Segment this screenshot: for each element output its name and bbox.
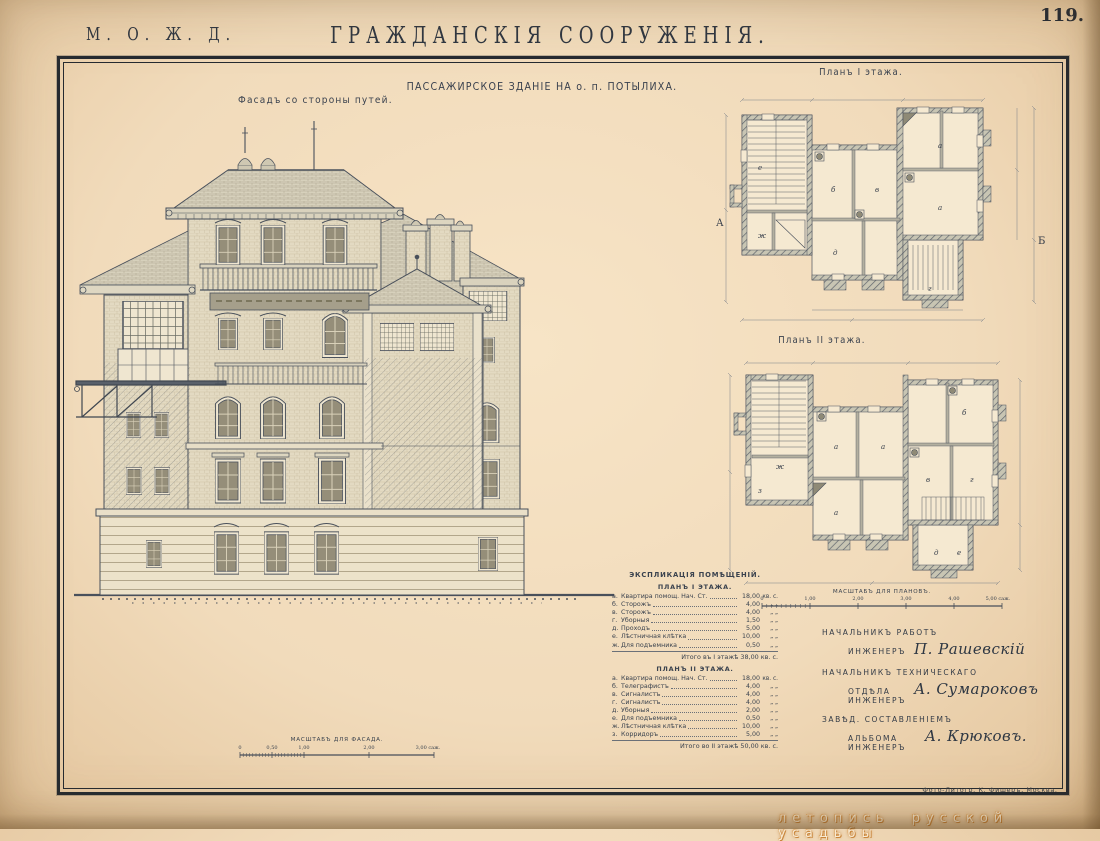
- page-title: ГРАЖДАНСКІЯ СООРУЖЕНІЯ.: [0, 22, 1100, 49]
- row-letter: з.: [612, 731, 621, 739]
- tick-label: 3,00 саж.: [416, 745, 441, 751]
- row-name: Лѣстничная клѣтка: [621, 723, 686, 731]
- dotted-leader: [710, 598, 737, 599]
- row-letter: б.: [612, 683, 621, 691]
- tick-label: 0,50: [266, 745, 277, 751]
- section-marker-left: А: [716, 218, 724, 229]
- row-value: 5,00: [739, 731, 760, 739]
- row-name: Квартира помощ. Нач. Ст.: [621, 593, 708, 601]
- signature-name: А. Сумароковъ: [914, 680, 1038, 698]
- tick-label: 5,00 саж.: [986, 596, 1010, 602]
- plan2-label: Планъ II этажа.: [762, 335, 882, 346]
- row-unit: „ „: [760, 715, 778, 723]
- dotted-leader: [653, 614, 737, 615]
- explication-row: б.Телеграфистъ4,00„ „: [612, 683, 778, 691]
- row-name: Сигналистъ: [621, 691, 660, 699]
- row-name: Сторожъ: [621, 601, 651, 609]
- room-letter: е: [957, 549, 961, 557]
- dotted-leader: [660, 736, 737, 737]
- row-value: 4,00: [739, 683, 760, 691]
- tick-label: 0: [238, 745, 241, 751]
- dotted-leader: [688, 728, 737, 729]
- dotted-leader: [710, 680, 737, 681]
- signature-block: НАЧАЛЬНИКЪ РАБОТЪ ИНЖЕНЕРЪ П. Рашевскій …: [822, 628, 1027, 762]
- row-name: Уборныя: [621, 617, 649, 625]
- explication-floor1-total: Итого въ I этажѣ 38,00 кв. с.: [612, 651, 778, 661]
- room-letter: г: [928, 285, 932, 293]
- explication-row: ж.Для подъемника0,50„ „: [612, 642, 778, 650]
- dotted-leader: [688, 639, 737, 640]
- row-unit: „ „: [760, 625, 778, 633]
- room-letter: ж: [776, 463, 784, 471]
- room-letter: ж: [758, 232, 766, 240]
- plans-scale-label: МАСШТАБЪ ДЛЯ ПЛАНОВЪ.: [833, 589, 931, 595]
- lithographer-credit: Фото-Литогр. К. Фишеръ, Москва.: [880, 786, 1100, 794]
- dotted-leader: [679, 720, 737, 721]
- row-name: Корридоръ: [621, 731, 658, 739]
- explication-row: г.Сигналистъ4,00„ „: [612, 699, 778, 707]
- room-letter: д: [833, 249, 838, 257]
- dotted-leader: [651, 622, 737, 623]
- room-letter: г: [970, 476, 974, 484]
- plate-caption: ПАССАЖИРСКОЕ ЗДАНІЕ НА о. п. ПОТЫЛИХА.: [392, 81, 692, 93]
- plan1-label: Планъ I этажа.: [801, 67, 921, 78]
- signature-role: ОТДѢЛА ИНЖЕНЕРЪ: [848, 687, 906, 705]
- room-letter: з: [758, 487, 762, 495]
- room-letter: б: [831, 186, 836, 194]
- row-value: 5,00: [739, 625, 760, 633]
- signature-role: НАЧАЛЬНИКЪ РАБОТЪ: [822, 628, 1027, 637]
- row-letter: г.: [612, 617, 621, 625]
- scanned-plate-page: { "page": { "org": "М. О. Ж. Д.", "title…: [0, 0, 1100, 829]
- dotted-leader: [662, 704, 737, 705]
- dotted-leader: [679, 647, 737, 648]
- facade-scale-ticks: 0 0,50 1,00 2,00 3,00 саж.: [238, 745, 440, 751]
- row-letter: а.: [612, 675, 621, 683]
- dotted-leader: [652, 630, 737, 631]
- row-name: Для подъемника: [621, 642, 677, 650]
- tick-label: 1,00: [804, 596, 815, 602]
- plan-floor1-drawing: а а б в г д е ж А Б: [712, 90, 1047, 335]
- row-letter: д.: [612, 625, 621, 633]
- row-unit: „ „: [760, 691, 778, 699]
- explication-row: з.Корридоръ5,00„ „: [612, 731, 778, 739]
- row-unit: „ „: [760, 633, 778, 641]
- tick-label: 2,00: [363, 745, 374, 751]
- dotted-leader: [671, 688, 737, 689]
- row-value: 1,50: [739, 617, 760, 625]
- explication-row: д.Уборныя2,00„ „: [612, 707, 778, 715]
- row-name: Уборныя: [621, 707, 649, 715]
- facade-elevation-drawing: [62, 113, 627, 608]
- tick-label: 4,00: [948, 596, 959, 602]
- room-letter: а: [881, 443, 885, 451]
- row-value: 10,00: [739, 633, 760, 641]
- collection-watermark: летопись русской усадьбы: [778, 811, 1098, 841]
- signature-name: П. Рашевскій: [914, 640, 1025, 658]
- explication-floor2-total: Итого во II этажѣ 50,00 кв. с.: [612, 740, 778, 750]
- explication-row: е.Для подъемника0,50„ „: [612, 715, 778, 723]
- plans-scale-ticks: 0 1,00 2,00 3,00 4,00 5,00 саж.: [760, 596, 1010, 602]
- explication-row: а.Квартира помощ. Нач. Ст.18,00кв. с.: [612, 675, 778, 683]
- row-name: Квартира помощ. Нач. Ст.: [621, 675, 708, 683]
- explication-floor2-list: а.Квартира помощ. Нач. Ст.18,00кв. с. б.…: [612, 675, 778, 740]
- row-value: 4,00: [739, 699, 760, 707]
- row-letter: в.: [612, 691, 621, 699]
- signature-role: ИНЖЕНЕРЪ: [848, 647, 906, 656]
- plans-scale-bar: МАСШТАБЪ ДЛЯ ПЛАНОВЪ. 0 1,00 2,00 3,00 4…: [754, 586, 1010, 614]
- row-unit: кв. с.: [760, 675, 778, 683]
- room-letter: а: [834, 443, 838, 451]
- tick-label: 1,00: [298, 745, 309, 751]
- row-value: 18,00: [739, 675, 760, 683]
- row-name: Сигналистъ: [621, 699, 660, 707]
- row-value: 0,50: [739, 715, 760, 723]
- room-letter: а: [834, 509, 838, 517]
- facade-label: Фасадъ со стороны путей.: [238, 95, 393, 106]
- plan-floor2-drawing: а а а б в г д е ж з: [698, 355, 1050, 590]
- room-letter: а: [938, 142, 942, 150]
- row-value: 0,50: [739, 642, 760, 650]
- row-letter: а.: [612, 593, 621, 601]
- row-unit: „ „: [760, 731, 778, 739]
- room-letter: в: [875, 186, 879, 194]
- row-letter: ж.: [612, 642, 621, 650]
- row-value: 4,00: [739, 691, 760, 699]
- tick-label: 0: [760, 596, 763, 602]
- row-unit: „ „: [760, 642, 778, 650]
- facade-scale-bar: МАСШТАБЪ ДЛЯ ФАСАДА. 0 0,50 1,00 2,00 3,…: [232, 733, 442, 763]
- row-letter: б.: [612, 601, 621, 609]
- row-letter: е.: [612, 715, 621, 723]
- row-unit: „ „: [760, 707, 778, 715]
- row-letter: е.: [612, 633, 621, 641]
- signature-role: НАЧАЛЬНИКЪ ТЕХНИЧЕСКАГО: [822, 668, 1027, 677]
- row-value: 2,00: [739, 707, 760, 715]
- row-name: Для подъемника: [621, 715, 677, 723]
- row-letter: д.: [612, 707, 621, 715]
- dotted-leader: [653, 606, 737, 607]
- tick-label: 3,00: [900, 596, 911, 602]
- explication-row: е.Лѣстничная клѣтка10,00„ „: [612, 633, 778, 641]
- row-name: Телеграфистъ: [621, 683, 669, 691]
- row-letter: ж.: [612, 723, 621, 731]
- room-letter: в: [926, 476, 930, 484]
- room-letter: б: [962, 409, 967, 417]
- explication-header: ЭКСПЛИКАЦІЯ ПОМѢЩЕНІЙ.: [612, 571, 778, 579]
- explication-row: г.Уборныя1,50„ „: [612, 617, 778, 625]
- tick-label: 2,00: [852, 596, 863, 602]
- explication-row: в.Сигналистъ4,00„ „: [612, 691, 778, 699]
- row-value: 10,00: [739, 723, 760, 731]
- signature-role: ЗАВѢД. СОСТАВЛЕНІЕМЪ: [822, 715, 1027, 724]
- row-unit: „ „: [760, 723, 778, 731]
- page-number: 119.: [1040, 5, 1084, 26]
- facade-scale-label: МАСШТАБЪ ДЛЯ ФАСАДА.: [291, 737, 384, 743]
- room-letter: а: [938, 204, 942, 212]
- row-unit: „ „: [760, 617, 778, 625]
- room-letter: е: [758, 164, 762, 172]
- row-letter: в.: [612, 609, 621, 617]
- signature-role: АЛЬБОМА ИНЖЕНЕРЪ: [848, 734, 917, 752]
- dotted-leader: [662, 696, 737, 697]
- explication-floor2-title: ПЛАНЪ II ЭТАЖА.: [612, 665, 778, 673]
- room-letter: д: [934, 549, 939, 557]
- row-name: Лѣстничная клѣтка: [621, 633, 686, 641]
- signature-name: А. Крюковъ.: [925, 727, 1027, 745]
- section-marker-right: Б: [1038, 236, 1045, 247]
- row-unit: „ „: [760, 699, 778, 707]
- row-unit: „ „: [760, 683, 778, 691]
- explication-row: ж.Лѣстничная клѣтка10,00„ „: [612, 723, 778, 731]
- row-letter: г.: [612, 699, 621, 707]
- dotted-leader: [651, 712, 737, 713]
